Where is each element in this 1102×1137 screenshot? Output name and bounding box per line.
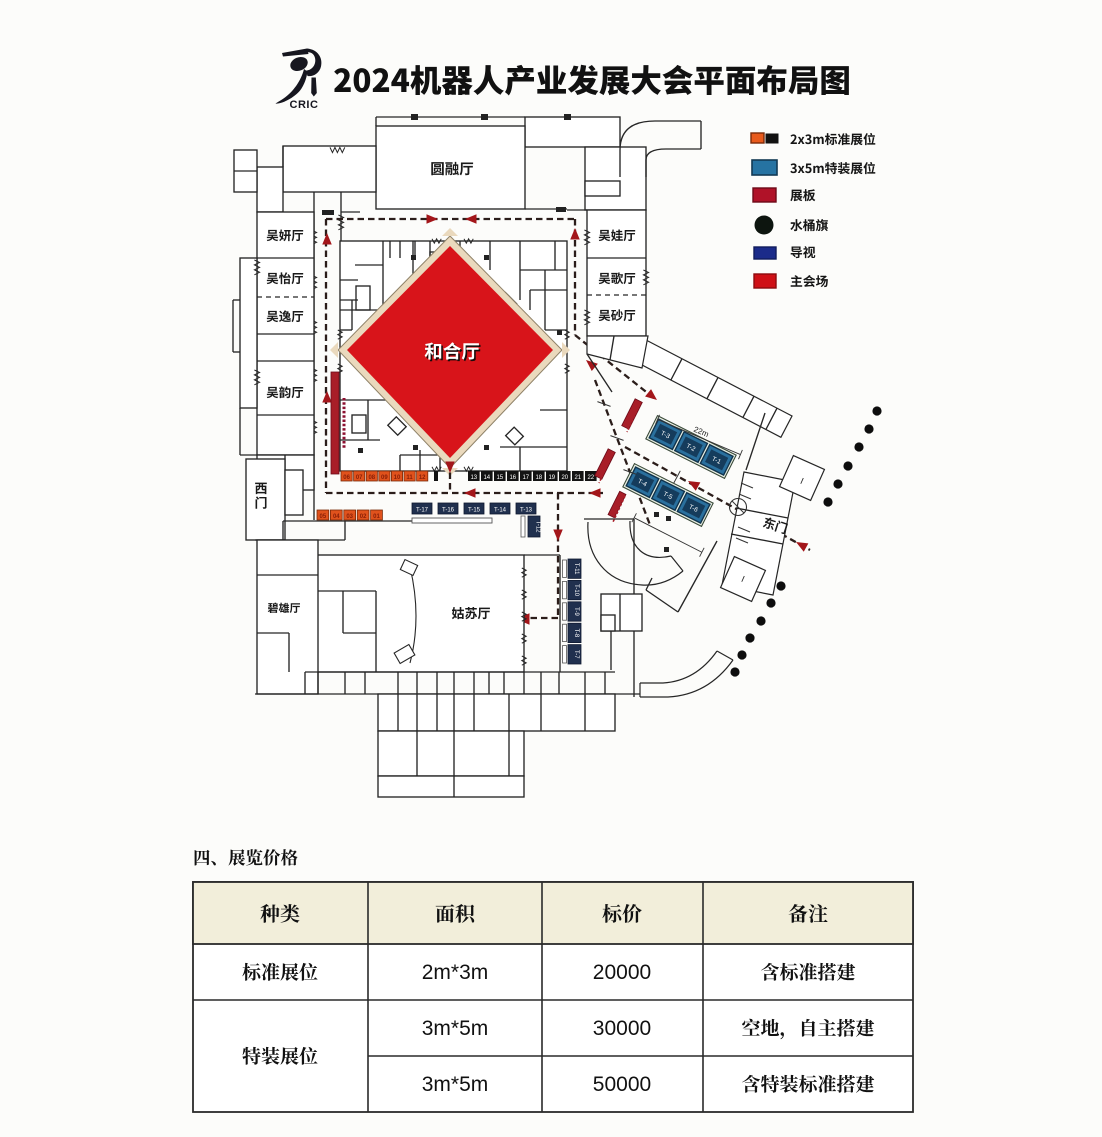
svg-text:18: 18 bbox=[535, 475, 542, 481]
svg-text:T-11: T-11 bbox=[573, 563, 579, 575]
svg-text:10: 10 bbox=[394, 475, 401, 481]
svg-text:T-8: T-8 bbox=[573, 629, 579, 638]
svg-text:01: 01 bbox=[373, 514, 380, 520]
svg-text:21: 21 bbox=[574, 475, 581, 481]
svg-text:30000: 30000 bbox=[593, 1017, 651, 1040]
svg-text:T-17: T-17 bbox=[416, 508, 429, 514]
svg-text:02: 02 bbox=[360, 514, 367, 520]
svg-text:05: 05 bbox=[320, 514, 327, 520]
svg-text:T-14: T-14 bbox=[494, 508, 507, 514]
svg-text:22: 22 bbox=[587, 475, 594, 481]
svg-text:17: 17 bbox=[522, 475, 529, 481]
svg-text:16: 16 bbox=[509, 475, 516, 481]
svg-text:11: 11 bbox=[406, 475, 413, 481]
svg-text:3m*5m: 3m*5m bbox=[422, 1017, 489, 1040]
svg-text:T-13: T-13 bbox=[520, 508, 533, 514]
svg-text:T-12: T-12 bbox=[535, 520, 541, 533]
svg-text:19: 19 bbox=[548, 475, 555, 481]
svg-text:20000: 20000 bbox=[593, 961, 651, 984]
svg-text:CRIC: CRIC bbox=[290, 99, 319, 111]
svg-text:12: 12 bbox=[419, 475, 426, 481]
svg-text:13: 13 bbox=[470, 475, 477, 481]
svg-text:T-16: T-16 bbox=[442, 508, 455, 514]
svg-text:08: 08 bbox=[368, 475, 375, 481]
svg-text:20: 20 bbox=[561, 475, 568, 481]
svg-text:07: 07 bbox=[356, 475, 363, 481]
svg-text:2m*3m: 2m*3m bbox=[422, 961, 489, 984]
svg-text:03: 03 bbox=[346, 514, 353, 520]
svg-text:04: 04 bbox=[333, 514, 340, 520]
svg-text:T-9: T-9 bbox=[573, 607, 579, 616]
svg-text:06: 06 bbox=[343, 475, 350, 481]
svg-text:T-7: T-7 bbox=[573, 650, 579, 659]
svg-text:T-10: T-10 bbox=[573, 584, 579, 597]
svg-text:15: 15 bbox=[496, 475, 503, 481]
svg-text:09: 09 bbox=[381, 475, 388, 481]
svg-text:50000: 50000 bbox=[593, 1073, 651, 1096]
svg-text:14: 14 bbox=[483, 475, 490, 481]
svg-text:3m*5m: 3m*5m bbox=[422, 1073, 489, 1096]
svg-text:T-15: T-15 bbox=[468, 508, 481, 514]
